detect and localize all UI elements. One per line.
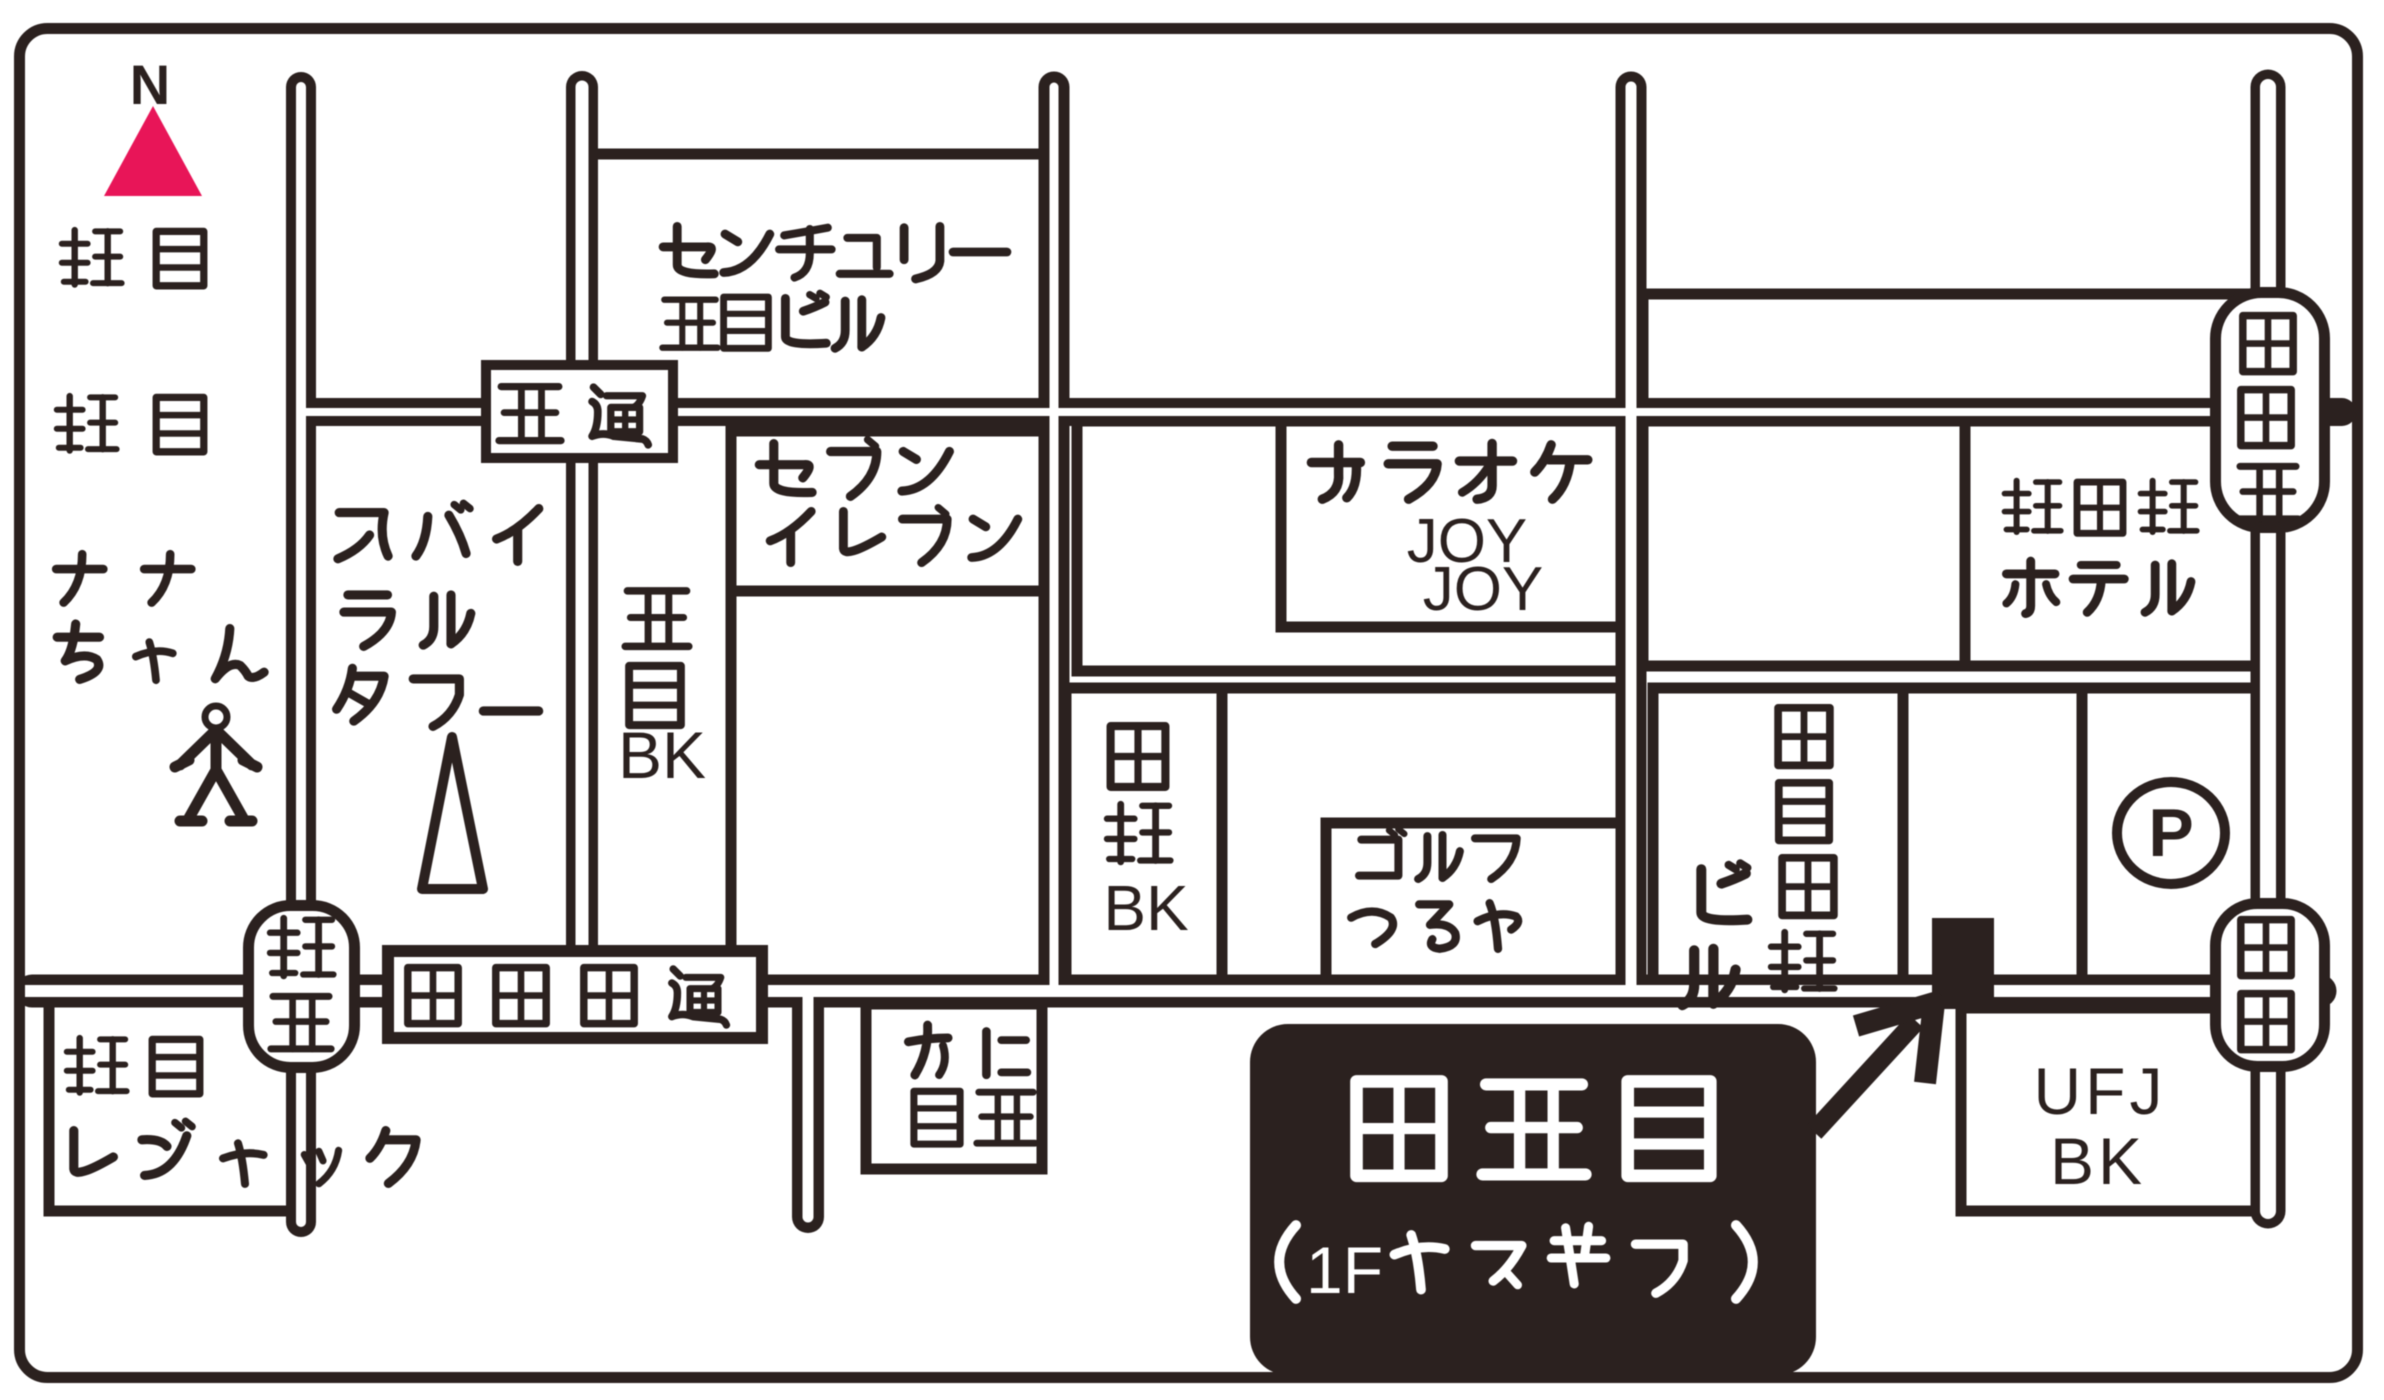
svg-text:1F: 1F bbox=[1306, 1233, 1383, 1307]
svg-text:P: P bbox=[2148, 795, 2193, 871]
svg-text:BK: BK bbox=[2050, 1124, 2146, 1198]
svg-text:UFJ: UFJ bbox=[2034, 1054, 2167, 1128]
svg-text:BK: BK bbox=[618, 718, 706, 792]
svg-text:JOY: JOY bbox=[1423, 555, 1544, 624]
svg-text:N: N bbox=[130, 53, 170, 116]
svg-text:BK: BK bbox=[1103, 872, 1188, 944]
